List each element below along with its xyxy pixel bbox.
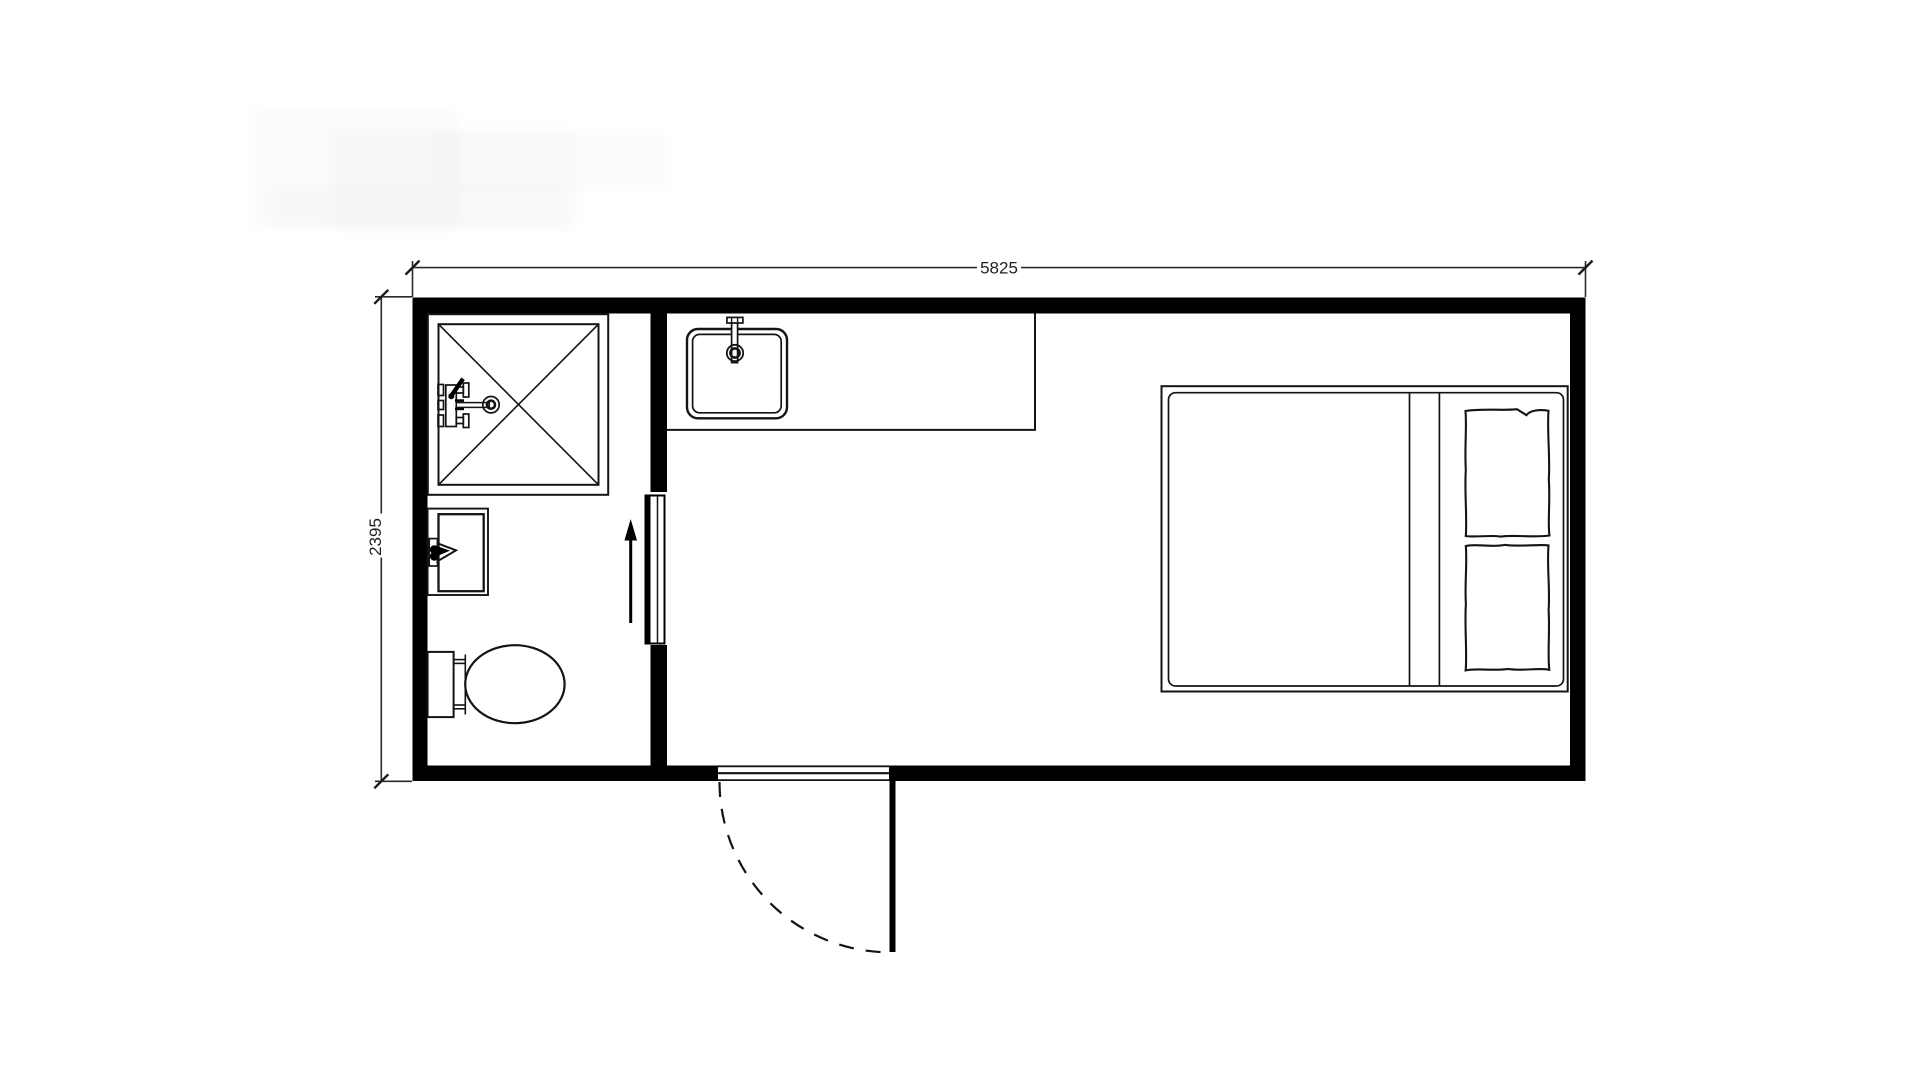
svg-text:5825: 5825 <box>980 259 1018 278</box>
svg-text:2395: 2395 <box>366 518 385 556</box>
